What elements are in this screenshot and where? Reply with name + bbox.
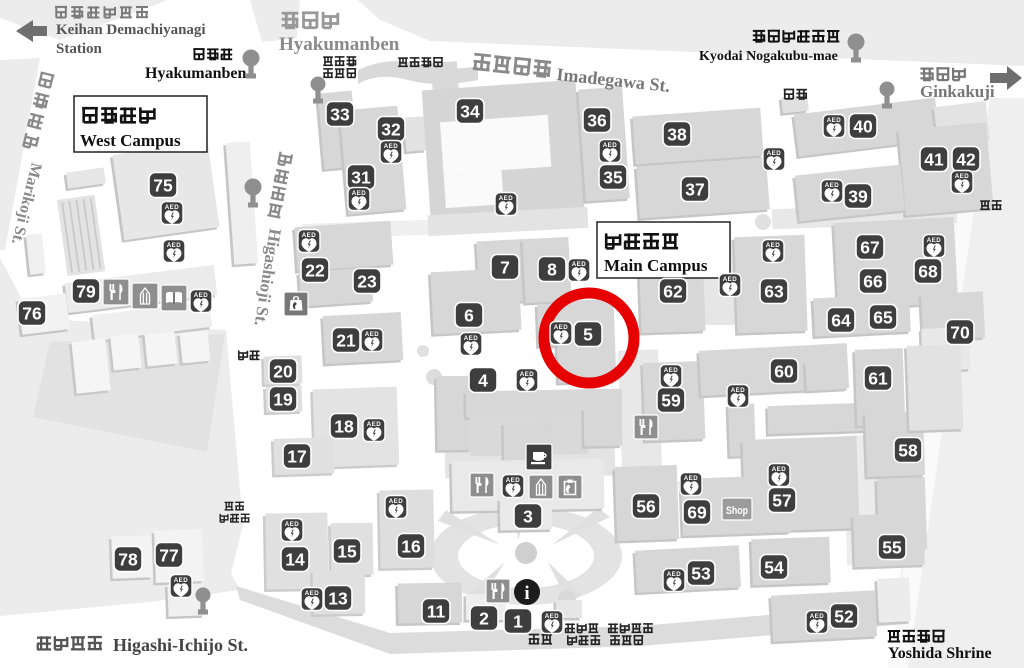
svg-text:19: 19: [273, 389, 293, 409]
svg-text:AED: AED: [167, 242, 182, 249]
svg-text:AED: AED: [955, 173, 970, 180]
svg-text:54: 54: [764, 557, 784, 577]
svg-text:AED: AED: [767, 150, 782, 157]
svg-text:AED: AED: [367, 421, 382, 428]
svg-text:34: 34: [460, 101, 480, 121]
svg-text:66: 66: [863, 271, 883, 291]
svg-text:AED: AED: [174, 577, 189, 584]
svg-text:Hyakumanben: Hyakumanben: [145, 65, 246, 82]
svg-text:AED: AED: [464, 335, 479, 342]
svg-text:65: 65: [873, 307, 893, 327]
svg-text:63: 63: [764, 281, 784, 301]
svg-text:AED: AED: [384, 143, 399, 150]
svg-text:18: 18: [334, 416, 354, 436]
svg-text:4: 4: [478, 370, 488, 390]
svg-text:13: 13: [328, 588, 348, 608]
svg-text:35: 35: [603, 167, 623, 187]
svg-text:7: 7: [500, 257, 510, 277]
svg-text:39: 39: [848, 186, 868, 206]
svg-text:AED: AED: [772, 466, 787, 473]
svg-text:AED: AED: [499, 195, 514, 202]
svg-text:75: 75: [153, 175, 173, 195]
svg-text:AED: AED: [389, 498, 404, 505]
svg-text:41: 41: [924, 149, 944, 169]
svg-text:AED: AED: [731, 387, 746, 394]
svg-text:Kyodai Nogakubu-mae: Kyodai Nogakubu-mae: [699, 49, 838, 64]
svg-text:Keihan Demachiyanagi: Keihan Demachiyanagi: [56, 22, 206, 38]
svg-text:AED: AED: [827, 117, 842, 124]
svg-text:68: 68: [918, 261, 938, 281]
svg-text:AED: AED: [825, 182, 840, 189]
svg-text:2: 2: [479, 608, 489, 628]
svg-text:i: i: [524, 583, 529, 604]
svg-text:33: 33: [330, 104, 350, 124]
svg-text:AED: AED: [365, 331, 380, 338]
svg-text:58: 58: [898, 440, 918, 460]
svg-text:21: 21: [336, 330, 356, 350]
svg-text:AED: AED: [664, 367, 679, 374]
svg-text:AED: AED: [572, 261, 587, 268]
svg-text:AED: AED: [684, 475, 699, 482]
svg-text:AED: AED: [520, 371, 535, 378]
svg-text:23: 23: [357, 271, 377, 291]
svg-text:70: 70: [950, 322, 970, 342]
svg-text:1: 1: [513, 611, 523, 631]
svg-text:20: 20: [273, 361, 293, 381]
svg-text:36: 36: [587, 110, 607, 130]
svg-text:AED: AED: [165, 204, 180, 211]
svg-text:67: 67: [860, 237, 879, 257]
svg-text:31: 31: [351, 167, 371, 187]
svg-text:17: 17: [287, 446, 306, 466]
svg-text:76: 76: [22, 303, 42, 323]
svg-text:64: 64: [831, 310, 851, 330]
svg-text:AED: AED: [352, 190, 367, 197]
svg-text:AED: AED: [927, 237, 942, 244]
svg-text:22: 22: [305, 260, 325, 280]
svg-text:8: 8: [547, 259, 557, 279]
svg-text:15: 15: [337, 541, 357, 561]
svg-text:AED: AED: [285, 521, 300, 528]
svg-text:6: 6: [464, 305, 474, 325]
svg-text:Hyakumanben: Hyakumanben: [279, 34, 400, 55]
svg-text:AED: AED: [667, 571, 682, 578]
svg-text:56: 56: [636, 496, 656, 516]
svg-text:Shop: Shop: [726, 505, 748, 517]
svg-text:69: 69: [687, 502, 707, 522]
svg-text:AED: AED: [305, 590, 320, 597]
svg-text:79: 79: [76, 281, 96, 301]
svg-text:32: 32: [381, 119, 401, 139]
svg-text:57: 57: [772, 490, 791, 510]
svg-text:14: 14: [285, 549, 305, 569]
svg-text:Ginkakuji: Ginkakuji: [920, 82, 995, 101]
svg-text:40: 40: [853, 116, 873, 136]
svg-text:60: 60: [774, 361, 794, 381]
svg-text:AED: AED: [194, 292, 209, 299]
svg-text:78: 78: [118, 549, 138, 569]
svg-text:52: 52: [834, 606, 854, 626]
svg-text:Main Campus: Main Campus: [604, 256, 708, 275]
svg-text:77: 77: [159, 545, 178, 565]
svg-text:AED: AED: [554, 324, 569, 331]
svg-text:53: 53: [691, 563, 711, 583]
svg-text:AED: AED: [723, 276, 738, 283]
svg-text:AED: AED: [603, 142, 618, 149]
svg-text:Yoshida Shrine: Yoshida Shrine: [888, 645, 992, 662]
svg-text:59: 59: [661, 390, 681, 410]
svg-text:62: 62: [663, 281, 683, 301]
svg-text:61: 61: [868, 368, 888, 388]
svg-text:AED: AED: [545, 613, 560, 620]
svg-text:West Campus: West Campus: [80, 131, 181, 150]
svg-text:AED: AED: [506, 477, 521, 484]
svg-text:16: 16: [401, 536, 421, 556]
svg-text:AED: AED: [302, 232, 317, 239]
svg-text:Higashi-Ichijo St.: Higashi-Ichijo St.: [113, 635, 248, 655]
svg-text:38: 38: [667, 124, 687, 144]
svg-text:AED: AED: [766, 242, 781, 249]
svg-text:3: 3: [523, 506, 533, 526]
svg-text:Station: Station: [56, 41, 103, 57]
svg-text:37: 37: [685, 179, 704, 199]
svg-text:42: 42: [956, 149, 976, 169]
svg-text:11: 11: [427, 601, 446, 621]
svg-text:AED: AED: [810, 613, 825, 620]
svg-text:5: 5: [583, 324, 593, 344]
svg-text:55: 55: [882, 537, 902, 557]
